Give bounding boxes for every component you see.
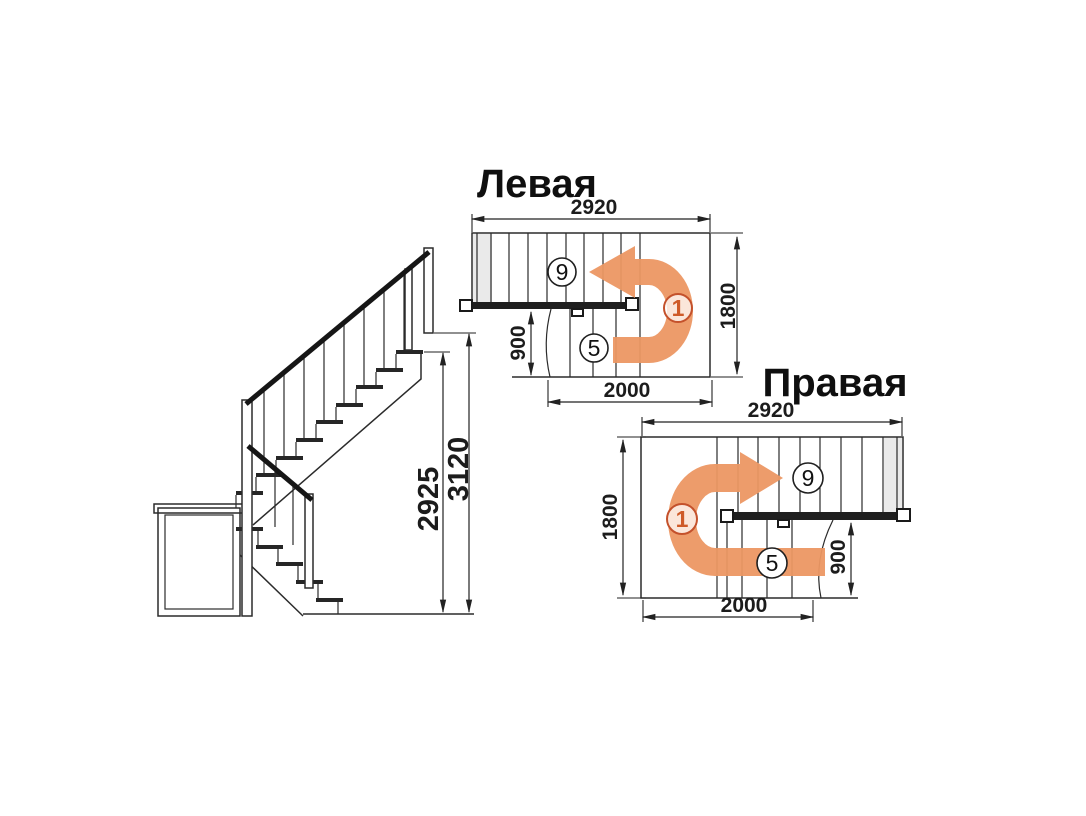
- plan-right-step9-badge: 9: [793, 463, 823, 493]
- plan-left-step9-label: 9: [556, 259, 569, 285]
- plan-left-edge-cap-left: [460, 300, 472, 311]
- plan-right-dim-2920: 2920: [748, 399, 795, 422]
- plan-left-step9-badge: 9: [548, 258, 576, 286]
- upper-flight-risers: [236, 354, 396, 508]
- plan-right-edge-cap-right: [897, 509, 910, 521]
- elevation-dimensions: 2925 3120: [413, 333, 476, 612]
- plan-left-dim-2920: 2920: [571, 196, 618, 219]
- plan-left-dim-1800: 1800: [717, 283, 740, 330]
- plan-left-step5-badge: 5: [580, 334, 608, 362]
- plan-left-step1-label: 1: [672, 295, 685, 321]
- dim-label-2925: 2925: [413, 467, 445, 532]
- plan-left-shading: [473, 234, 492, 302]
- elevation-view: 2925 3120: [154, 248, 476, 616]
- plan-right-newel-marker: [778, 520, 789, 527]
- plan-right-step1-label: 1: [676, 506, 689, 532]
- plan-left-dim-900: 900: [507, 325, 530, 360]
- plan-right-edge-cap-left: [721, 510, 733, 522]
- stair-diagram-svg: 2925 3120 Левая 9 5: [0, 0, 1086, 816]
- plan-left-view: Левая 9 5 1: [460, 162, 743, 407]
- plan-right-dim-1800: 1800: [599, 494, 622, 541]
- plan-left-dim-2000: 2000: [604, 379, 651, 402]
- lower-newel-post: [305, 494, 313, 588]
- plan-right-dim-2000: 2000: [721, 594, 768, 617]
- plan-right-shading: [884, 438, 902, 512]
- dim-label-3120: 3120: [443, 437, 475, 502]
- plan-left-landing-edge: [466, 302, 632, 309]
- plan-right-step5-badge: 5: [757, 548, 787, 578]
- plan-right-landing-edge: [727, 512, 899, 520]
- plan-left-step5-label: 5: [588, 335, 601, 361]
- plan-right-dimensions: 2920 1800 900 2000: [599, 399, 902, 622]
- upper-small-post: [405, 269, 412, 350]
- plan-left-newel-marker: [572, 309, 583, 316]
- plan-right-step5-label: 5: [766, 550, 779, 576]
- plan-right-dim-900: 900: [827, 539, 850, 574]
- plan-right-step9-label: 9: [802, 465, 815, 491]
- plan-left-break-line: [546, 309, 551, 377]
- upper-handrail: [246, 252, 429, 404]
- plan-right-step1-badge: 1: [667, 504, 697, 534]
- elevation-pedestal: [154, 504, 246, 616]
- plan-left-edge-cap-right: [626, 298, 638, 310]
- top-newel-post: [424, 248, 433, 333]
- plan-left-step1-badge: 1: [664, 294, 692, 322]
- stair-drawing-canvas: 2925 3120 Левая 9 5: [0, 0, 1086, 816]
- middle-newel-post: [242, 400, 252, 616]
- plan-left-dimensions: 2920 1800 900 2000: [472, 196, 743, 407]
